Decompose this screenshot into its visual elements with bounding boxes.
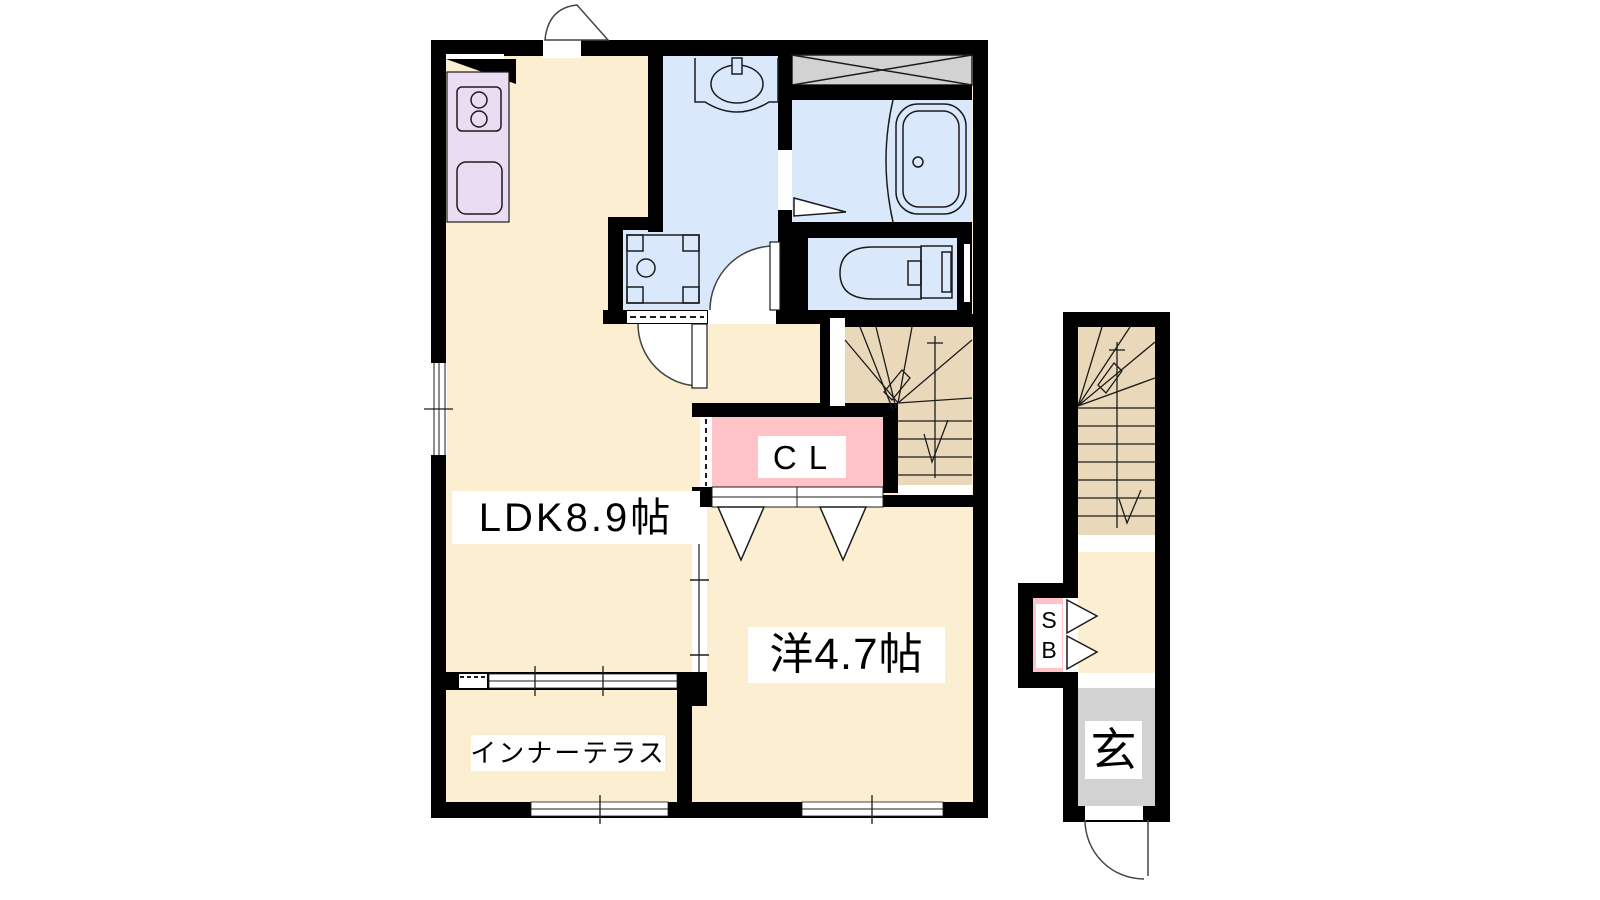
closet-sliding-doors — [712, 487, 883, 507]
main-unit — [424, 5, 988, 824]
entry-door-arc — [1085, 806, 1148, 879]
entrance-label: 玄 — [1085, 721, 1142, 779]
top-window-slit — [446, 54, 504, 59]
washroom-sliding-door — [627, 311, 707, 323]
hatched-storage-icon — [792, 55, 972, 85]
closet-left-partition — [700, 417, 712, 487]
kitchen-counter — [447, 72, 509, 222]
stair-landing-break — [1078, 535, 1155, 552]
floorplan-page: { "plan": { "rooms": { "ldk_label": "LDK… — [0, 0, 1600, 900]
closet-label: CL — [758, 436, 846, 478]
western-room-label: 洋4.7帖 — [748, 627, 945, 683]
entrance-step-break — [1078, 673, 1155, 688]
inner-terrace-label: インナーテラス — [471, 735, 665, 771]
ldk-room-label: LDK8.9帖 — [452, 491, 700, 544]
shoe-box-label: SB — [1036, 604, 1062, 668]
toilet-window-slit — [964, 244, 970, 302]
stair-annex — [1018, 312, 1170, 879]
staircase-annex — [1078, 327, 1155, 535]
room-bathroom-floor — [792, 100, 972, 222]
